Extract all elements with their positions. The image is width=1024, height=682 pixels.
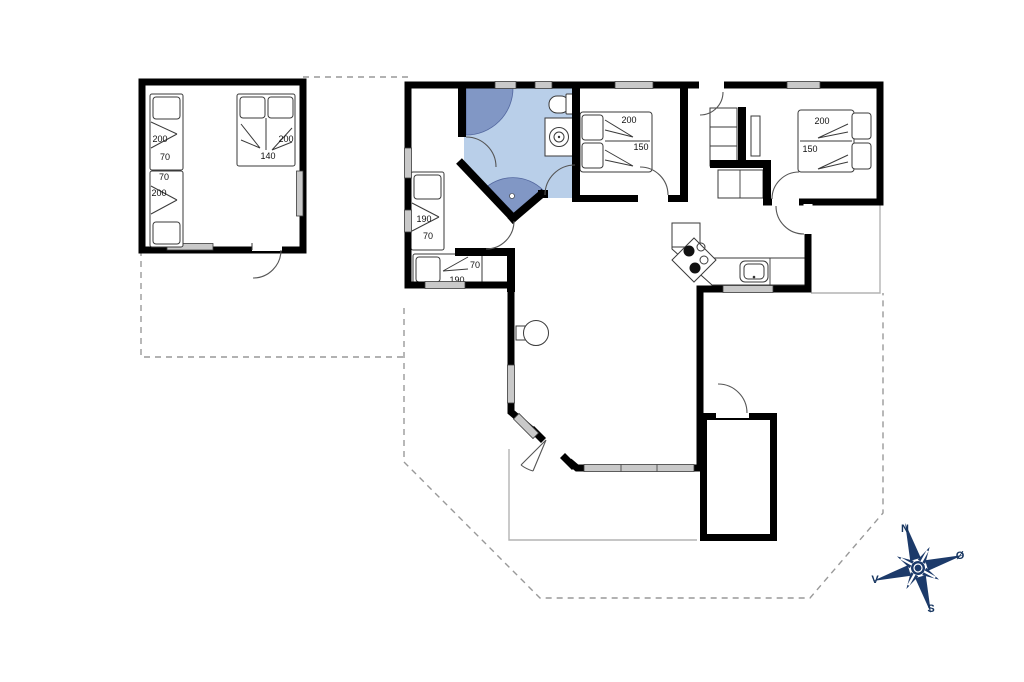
window [297,171,304,216]
hall-closets [710,108,763,198]
washbasin [545,118,573,156]
svg-text:200: 200 [152,134,167,144]
storage-room [704,384,774,538]
annex-bed-single-top: 200 70 [150,94,183,170]
svg-text:70: 70 [423,231,433,241]
main-house: 190 70 70 190 200 150 200 150 [405,81,881,472]
svg-text:200: 200 [814,116,829,126]
svg-text:200: 200 [621,115,636,125]
door-arc [253,250,281,278]
svg-text:140: 140 [260,151,275,161]
compass-west-label: V [871,574,879,586]
kitchen-sink [740,261,768,282]
toilet [549,94,573,114]
svg-text:150: 150 [802,144,817,154]
svg-text:70: 70 [160,152,170,162]
tall-cabinet [718,170,763,198]
annex-building: 200 70 70 200 200 140 [142,82,303,278]
annex-bed-double: 200 140 [237,94,295,166]
annex-bed-single-bottom: 70 200 [150,171,183,247]
svg-text:70: 70 [159,172,169,182]
floorplan-page: 200 70 70 200 200 140 [0,0,1024,682]
svg-text:70: 70 [470,260,480,270]
compass-south-label: S [927,603,934,615]
compass-east-label: Ø [956,550,965,562]
svg-text:200: 200 [151,188,166,198]
svg-text:200: 200 [278,134,293,144]
annex-door-gap [252,242,282,251]
compass-north-label: N [901,523,909,535]
door-arc [718,384,747,413]
east-door-gap [804,204,813,234]
shower-drain [510,194,515,199]
wardrobe-shelf [751,116,760,156]
svg-text:190: 190 [416,214,431,224]
front-door-gap [699,81,724,90]
storage-door-gap [716,409,749,418]
floorplan-drawing: 200 70 70 200 200 140 [0,0,1024,682]
compass-rose-icon: N Ø S V [860,510,976,626]
svg-text:150: 150 [633,142,648,152]
bedroom-middle-bed: 200 150 [580,112,652,172]
